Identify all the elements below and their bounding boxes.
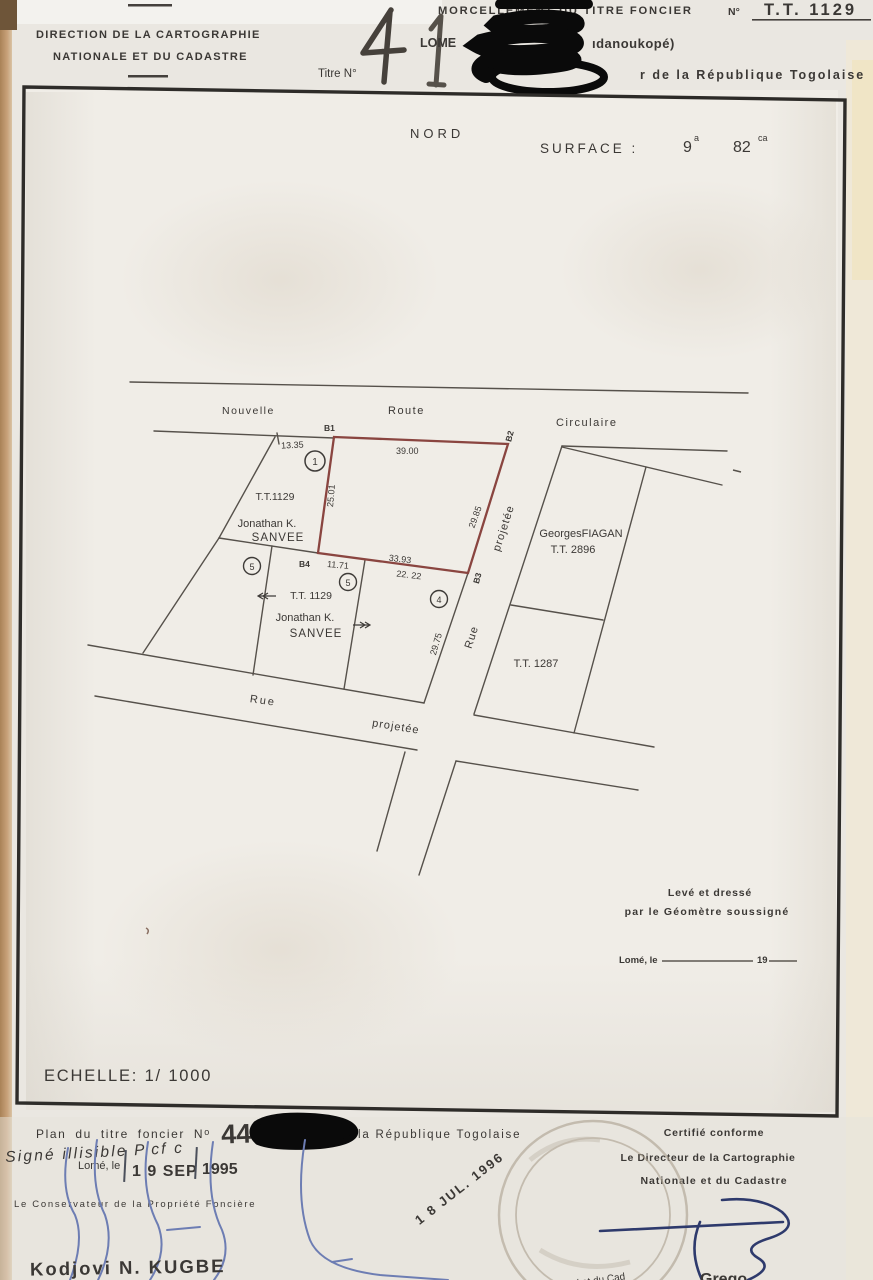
- svg-text:5: 5: [345, 578, 350, 588]
- svg-text:ca: ca: [758, 133, 768, 143]
- svg-text:Jonathan K.: Jonathan K.: [276, 612, 335, 624]
- svg-text:SURFACE :: SURFACE :: [540, 141, 638, 156]
- svg-text:Le Conservateur de la Propriét: Le Conservateur de la Propriété Foncière: [14, 1199, 256, 1210]
- svg-text:5: 5: [249, 562, 254, 572]
- svg-text:T.T. 1129: T.T. 1129: [764, 1, 857, 19]
- svg-text:NATIONALE ET DU CADASTRE: NATIONALE ET DU CADASTRE: [53, 51, 248, 63]
- svg-text:Grego: Grego: [700, 1271, 747, 1280]
- svg-text:SANVEE: SANVEE: [290, 628, 343, 640]
- svg-text:44: 44: [221, 1118, 252, 1149]
- svg-text:T.T. 1129: T.T. 1129: [290, 590, 332, 602]
- svg-text:Nouvelle: Nouvelle: [222, 405, 275, 417]
- svg-text:Certifié conforme: Certifié conforme: [664, 1127, 765, 1139]
- svg-text:25.01: 25.01: [325, 484, 337, 507]
- svg-text:LOME: LOME: [420, 36, 456, 50]
- svg-text:Plan du titre foncier No: Plan du titre foncier No: [36, 1127, 211, 1141]
- svg-text:1995: 1995: [202, 1161, 238, 1178]
- svg-text:T.T. 1287: T.T. 1287: [514, 658, 559, 670]
- svg-text:Jonathan K.: Jonathan K.: [238, 518, 297, 530]
- svg-text:r de la République Togolaise: r de la République Togolaise: [640, 68, 865, 82]
- svg-text:T.T.1129: T.T.1129: [256, 491, 295, 503]
- svg-text:NORD: NORD: [410, 126, 464, 141]
- svg-text:ıdanoukopé): ıdanoukopé): [592, 36, 675, 51]
- svg-text:Le Directeur de la Cartographi: Le Directeur de la Cartographie: [621, 1152, 796, 1164]
- svg-text:19: 19: [757, 955, 768, 966]
- svg-text:Circulaire: Circulaire: [556, 417, 617, 429]
- svg-text:DIRECTION DE LA CARTOGRAPHIE: DIRECTION DE LA CARTOGRAPHIE: [36, 29, 261, 41]
- svg-text:B4: B4: [299, 559, 310, 569]
- svg-text:ECHELLE: 1/ 1000: ECHELLE: 1/ 1000: [44, 1067, 212, 1085]
- svg-text:1 9 SEP: 1 9 SEP: [132, 1163, 198, 1180]
- svg-text:GeorgesFIAGAN: GeorgesFIAGAN: [539, 528, 622, 540]
- svg-text:Levé et dressé: Levé et dressé: [668, 887, 752, 899]
- svg-text:Lomé, le: Lomé, le: [78, 1160, 120, 1172]
- svg-text:SANVEE: SANVEE: [252, 532, 305, 544]
- svg-text:T.T. 2896: T.T. 2896: [551, 544, 596, 556]
- svg-text:82: 82: [733, 139, 751, 156]
- svg-text:9: 9: [683, 139, 692, 156]
- svg-text:Titre N°: Titre N°: [318, 68, 357, 80]
- svg-text:Lomé, le: Lomé, le: [619, 955, 658, 966]
- svg-text:N°: N°: [728, 6, 740, 18]
- svg-text:la République Togolaise: la République Togolaise: [358, 1129, 521, 1141]
- svg-text:Route: Route: [388, 405, 425, 417]
- svg-text:a: a: [694, 133, 699, 143]
- svg-text:B1: B1: [324, 423, 335, 433]
- svg-text:4: 4: [436, 595, 441, 605]
- svg-text:par le Géomètre soussigné: par le Géomètre soussigné: [625, 906, 790, 918]
- svg-text:13.35: 13.35: [281, 440, 304, 451]
- svg-text:1: 1: [312, 457, 318, 468]
- svg-text:Kodjovi N. KUGBE: Kodjovi N. KUGBE: [30, 1255, 226, 1279]
- svg-text:39.00: 39.00: [396, 446, 419, 456]
- svg-text:11.71: 11.71: [327, 559, 350, 571]
